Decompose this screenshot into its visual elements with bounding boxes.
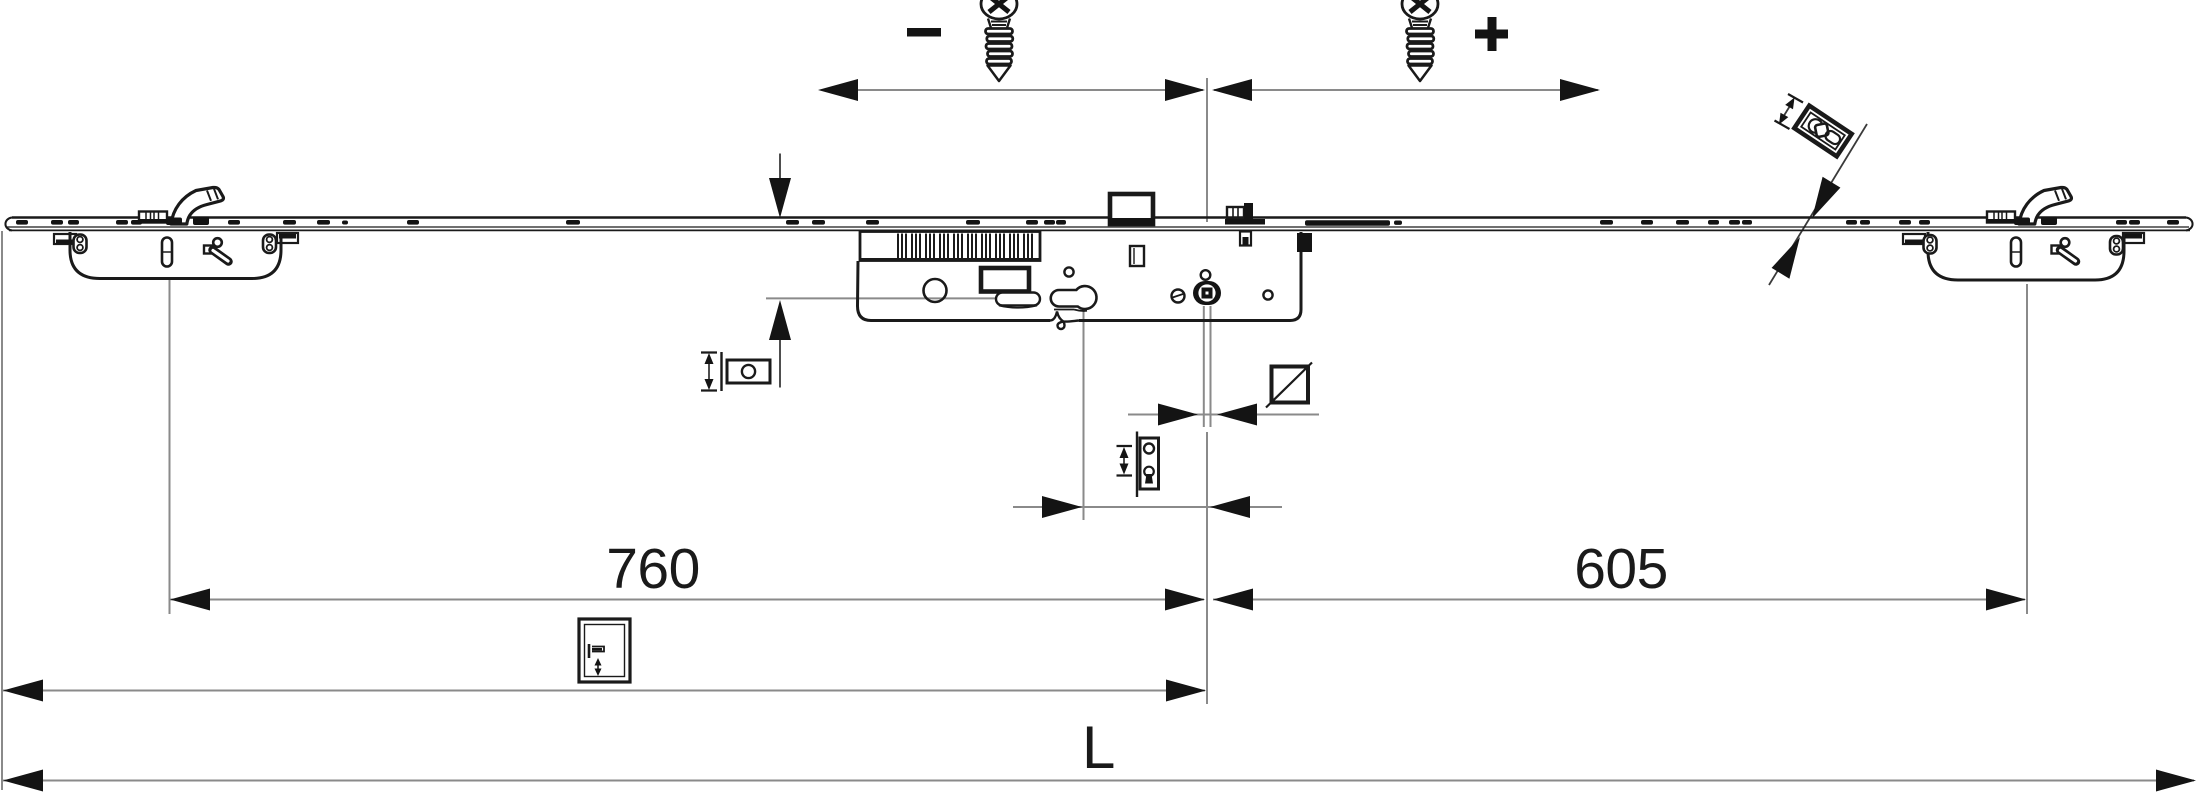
svg-text:760: 760: [606, 537, 700, 601]
svg-text:L: L: [1082, 714, 1115, 781]
svg-text:605: 605: [1574, 537, 1668, 601]
